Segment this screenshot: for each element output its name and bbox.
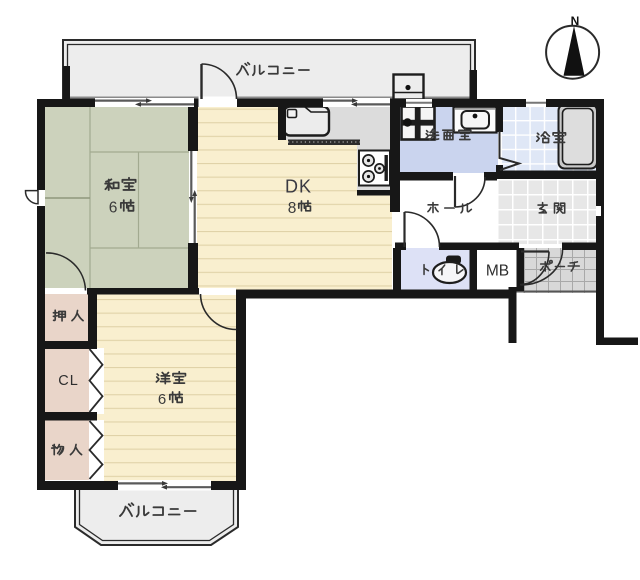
svg-text:CL: CL: [58, 373, 79, 389]
svg-text:6: 6: [158, 391, 166, 408]
svg-text:MB: MB: [486, 263, 509, 280]
svg-text:N: N: [571, 14, 580, 28]
svg-text:6: 6: [109, 200, 118, 217]
svg-text:DK: DK: [285, 177, 312, 197]
svg-text:8: 8: [288, 200, 297, 217]
